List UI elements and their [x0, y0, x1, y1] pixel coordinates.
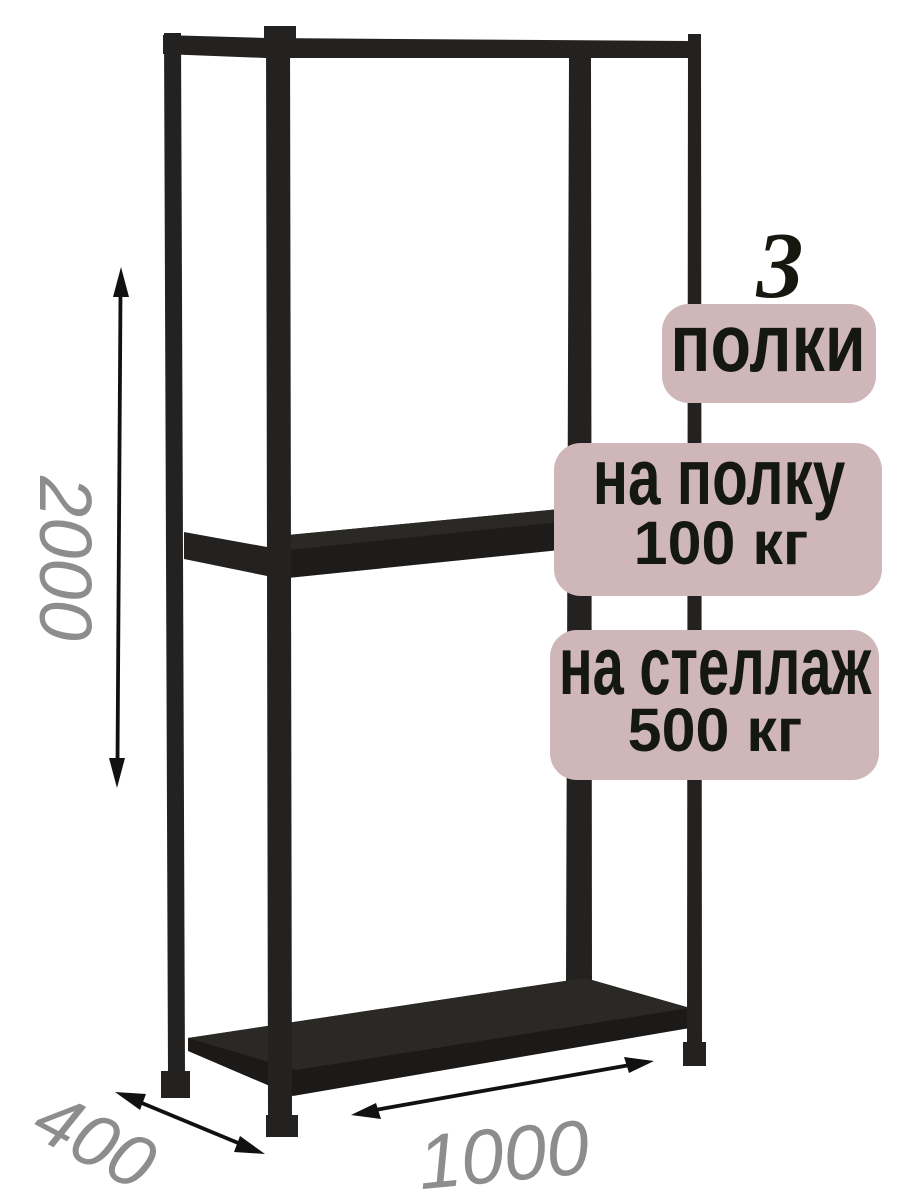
svg-text:на полку: на полку — [593, 432, 846, 521]
svg-text:полки: полки — [670, 296, 865, 388]
svg-text:1000: 1000 — [414, 1104, 593, 1200]
svg-text:2000: 2000 — [24, 475, 107, 641]
svg-text:500 кг: 500 кг — [628, 696, 803, 764]
svg-text:400: 400 — [21, 1075, 169, 1200]
svg-text:100 кг: 100 кг — [634, 509, 809, 577]
